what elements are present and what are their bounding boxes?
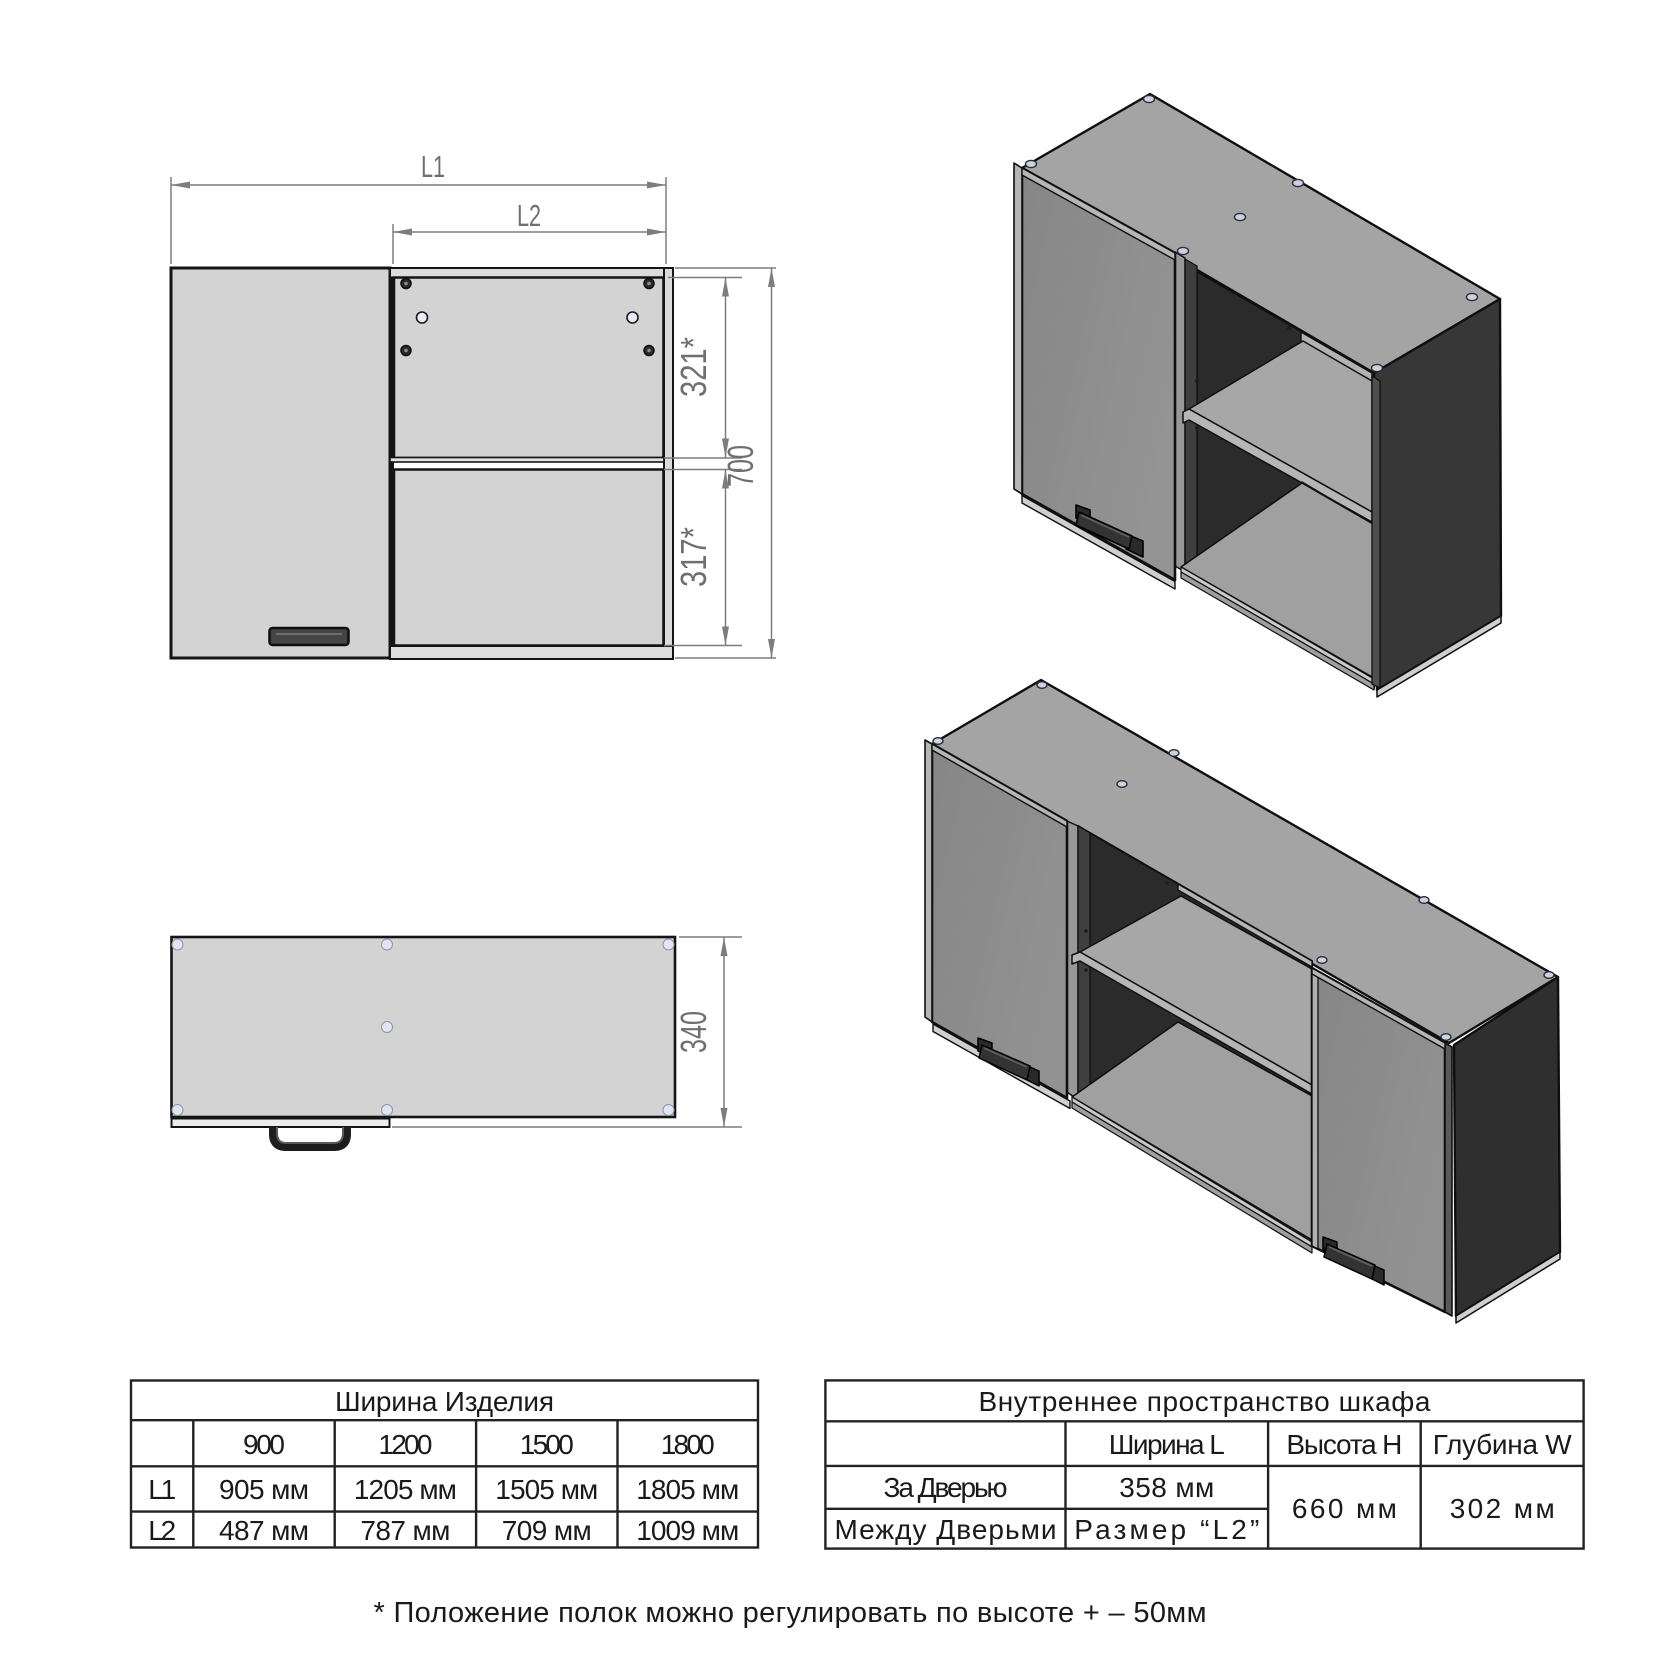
- svg-text:321*: 321*: [673, 337, 714, 397]
- svg-text:Внутреннее пространство шкафа: Внутреннее пространство шкафа: [979, 1386, 1431, 1417]
- svg-text:487 мм: 487 мм: [219, 1515, 309, 1546]
- svg-text:Ширина Изделия: Ширина Изделия: [335, 1386, 554, 1417]
- svg-text:709 мм: 709 мм: [502, 1515, 592, 1546]
- svg-text:787 мм: 787 мм: [360, 1515, 450, 1546]
- svg-text:900: 900: [243, 1429, 285, 1460]
- svg-text:Между Дверьми: Между Дверьми: [835, 1514, 1057, 1545]
- svg-text:За Дверью: За Дверью: [884, 1472, 1008, 1503]
- svg-text:317*: 317*: [673, 527, 714, 587]
- svg-text:Высота H: Высота H: [1286, 1429, 1402, 1460]
- svg-text:1505 мм: 1505 мм: [495, 1474, 598, 1505]
- svg-text:* Положение полок можно регули: * Положение полок можно регулировать по …: [374, 1597, 1207, 1629]
- svg-text:Размер “L2”: Размер “L2”: [1074, 1514, 1259, 1545]
- svg-text:1200: 1200: [378, 1429, 432, 1460]
- svg-text:1205 мм: 1205 мм: [354, 1474, 457, 1505]
- svg-text:L1: L1: [421, 149, 445, 184]
- svg-text:1800: 1800: [661, 1429, 715, 1460]
- svg-text:L2: L2: [148, 1515, 176, 1546]
- svg-text:L2: L2: [517, 198, 541, 233]
- svg-text:340: 340: [673, 1011, 714, 1053]
- svg-text:358 мм: 358 мм: [1119, 1472, 1214, 1503]
- svg-text:Глубина W: Глубина W: [1433, 1429, 1573, 1460]
- svg-text:1500: 1500: [520, 1429, 574, 1460]
- svg-text:905 мм: 905 мм: [219, 1474, 309, 1505]
- svg-text:L1: L1: [148, 1474, 176, 1505]
- svg-text:1009 мм: 1009 мм: [636, 1515, 739, 1546]
- svg-text:Ширина L: Ширина L: [1109, 1429, 1225, 1460]
- svg-text:1805 мм: 1805 мм: [636, 1474, 739, 1505]
- svg-text:700: 700: [720, 445, 761, 487]
